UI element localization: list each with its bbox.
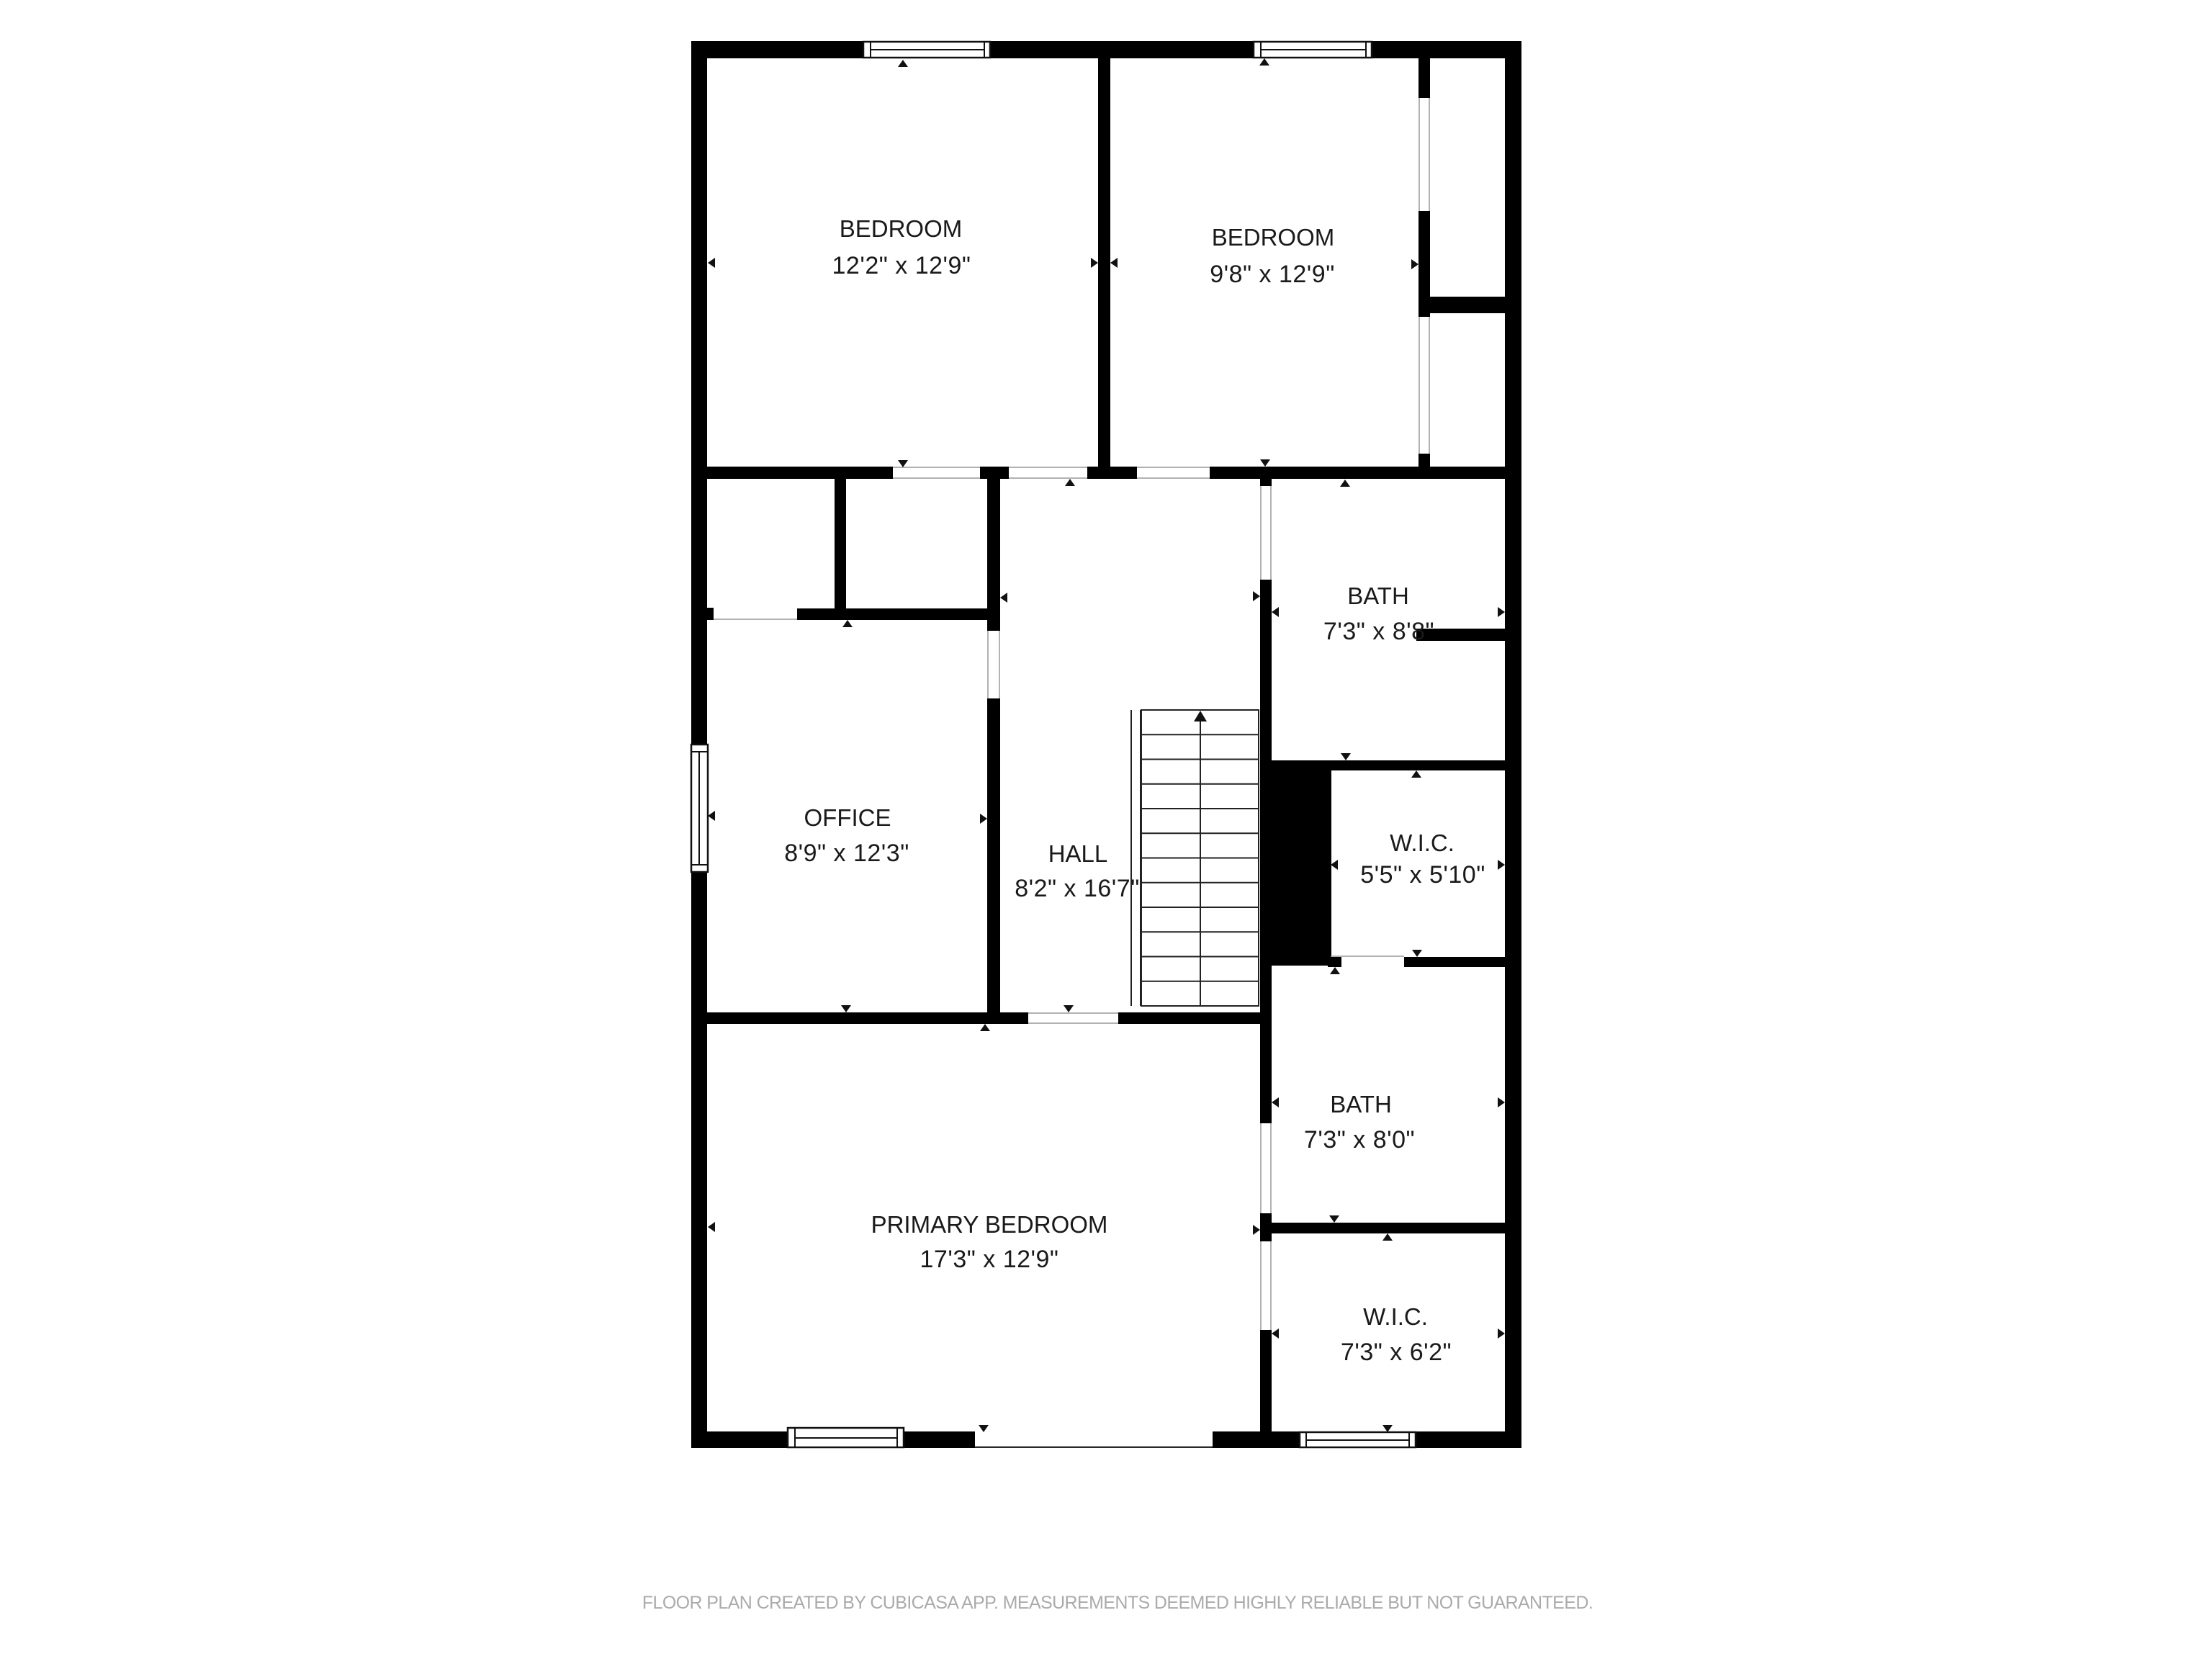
svg-text:PRIMARY BEDROOM: PRIMARY BEDROOM — [871, 1211, 1108, 1238]
svg-text:17'3" x 12'9": 17'3" x 12'9" — [920, 1246, 1059, 1273]
svg-text:BATH: BATH — [1330, 1091, 1392, 1118]
svg-text:BEDROOM: BEDROOM — [840, 215, 963, 242]
svg-text:BEDROOM: BEDROOM — [1212, 224, 1335, 251]
svg-text:7'3" x 8'0": 7'3" x 8'0" — [1304, 1126, 1415, 1154]
svg-text:BATH: BATH — [1347, 583, 1409, 609]
svg-text:9'8" x 12'9": 9'8" x 12'9" — [1210, 261, 1335, 288]
svg-text:FLOOR PLAN CREATED BY CUBICASA: FLOOR PLAN CREATED BY CUBICASA APP. MEAS… — [642, 1593, 1593, 1613]
svg-text:7'3" x 8'8": 7'3" x 8'8" — [1323, 618, 1434, 645]
svg-text:OFFICE: OFFICE — [804, 804, 891, 831]
svg-text:12'2" x 12'9": 12'2" x 12'9" — [832, 252, 971, 279]
svg-text:W.I.C.: W.I.C. — [1390, 829, 1455, 856]
svg-text:W.I.C.: W.I.C. — [1363, 1303, 1428, 1330]
svg-text:HALL: HALL — [1048, 840, 1108, 867]
svg-text:7'3" x 6'2": 7'3" x 6'2" — [1341, 1339, 1452, 1366]
svg-text:8'2" x 16'7": 8'2" x 16'7" — [1015, 875, 1140, 902]
svg-text:5'5" x 5'10": 5'5" x 5'10" — [1360, 861, 1485, 889]
svg-text:8'9" x 12'3": 8'9" x 12'3" — [784, 840, 909, 867]
